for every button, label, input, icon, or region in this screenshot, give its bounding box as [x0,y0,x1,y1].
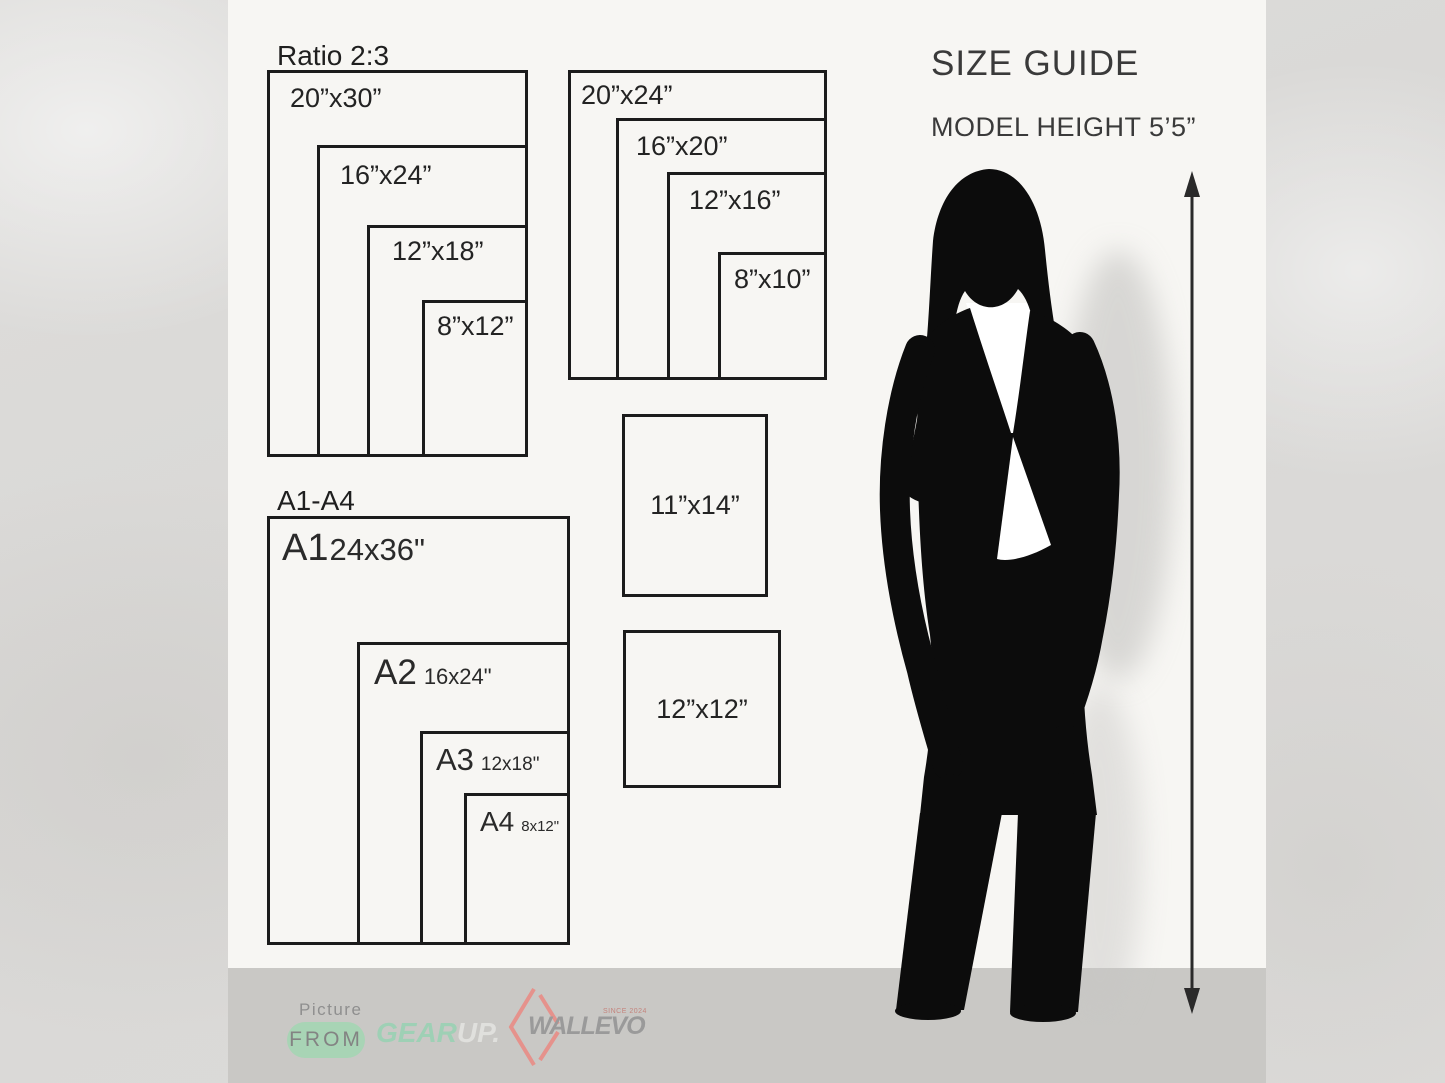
from-pill-text: FROM [289,1028,363,1052]
height-double-arrow-icon [1177,171,1207,1014]
size-box-12x12: 12”x12” [623,630,781,788]
size-label-20x24: 20”x24” [581,80,673,111]
a2-name: A2 [374,653,417,693]
a3-size: 12x18" [481,754,540,776]
wallevo-logo-text: WALLEVO [528,1012,645,1041]
size-label-12x16: 12”x16” [689,185,781,216]
size-box-a4: A4 8x12" [464,793,570,945]
size-label-16x20: 16”x20” [636,131,728,162]
size-label-a4: A4 8x12" [480,806,559,838]
a1-size: 24x36" [329,532,424,568]
size-box-8x10: 8”x10” [718,252,827,380]
size-guide-image: Ratio 2:3 20”x30” 16”x24” 12”x18” 8”x12”… [0,0,1445,1083]
size-label-20x30: 20”x30” [290,83,382,114]
model-height-label: MODEL HEIGHT 5’5” [931,112,1196,143]
size-label-a3: A3 12x18" [436,742,539,778]
a4-size: 8x12" [521,818,559,835]
a4-name: A4 [480,806,514,838]
size-label-8x12: 8”x12” [437,311,514,342]
picture-from-label: Picture [299,1000,362,1020]
size-box-11x14: 11”x14” [622,414,768,597]
size-label-12x12: 12”x12” [656,694,748,725]
gearup-logo: GEARUP. [376,1017,500,1049]
ratio-group-title: Ratio 2:3 [277,40,389,72]
a2-size: 16x24" [424,664,492,690]
size-label-8x10: 8”x10” [734,264,811,295]
size-label-a2: A2 16x24" [374,653,492,693]
a1-name: A1 [282,527,328,570]
size-box-8x12: 8”x12” [422,300,528,457]
model-silhouette [860,165,1190,1025]
size-label-a1: A1 24x36" [282,527,425,570]
a-group-title: A1-A4 [277,485,355,517]
gearup-logo-part1: GEAR [376,1017,457,1048]
size-label-16x24: 16”x24” [340,160,432,191]
wallevo-logo: SINCE 2024 WALLEVO [506,986,656,1074]
a3-name: A3 [436,742,474,778]
page-title: SIZE GUIDE [931,44,1139,84]
size-label-11x14: 11”x14” [650,490,740,521]
from-pill-badge: FROM [287,1022,365,1058]
size-label-12x18: 12”x18” [392,236,484,267]
gearup-logo-part2: UP. [457,1017,500,1048]
